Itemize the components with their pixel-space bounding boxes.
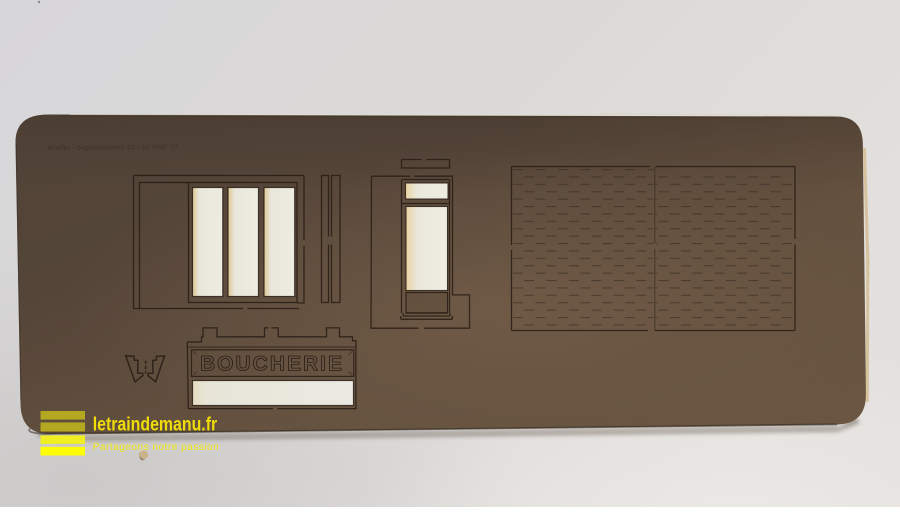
svg-text:letraindemanu.fr: letraindemanu.fr — [93, 415, 218, 436]
svg-text:BOUCHERIE: BOUCHERIE — [200, 353, 344, 376]
svg-text:Minifer - bagdadbrown0 63 - ki: Minifer - bagdadbrown0 63 - kit MMF 27 — [48, 144, 178, 152]
svg-text:Partageons notre passion: Partageons notre passion — [93, 442, 219, 453]
